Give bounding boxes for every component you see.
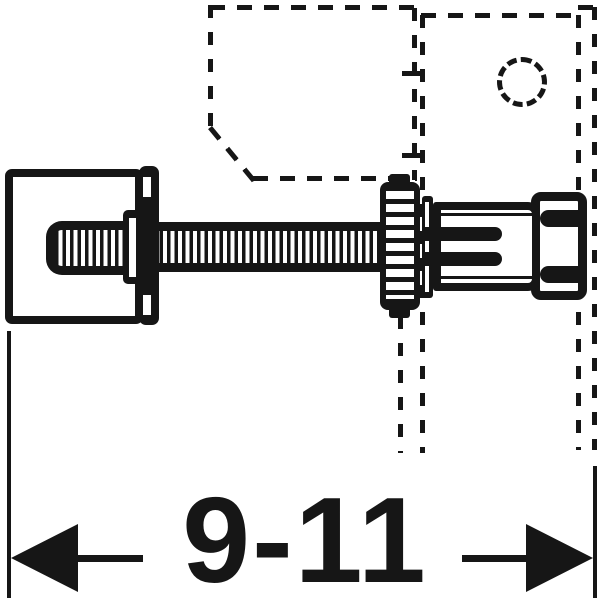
- rod-flange-groove: [129, 218, 136, 277]
- dimension-tail-left: [74, 555, 143, 562]
- panel-outline-top-dash: [210, 5, 421, 10]
- threaded-rod: [152, 222, 382, 272]
- plate-slot-bottom: [143, 295, 151, 315]
- extension-line-right: [593, 466, 597, 598]
- dimension-value: 9-11: [145, 479, 465, 600]
- anchor-sleeve-inner-wall: [440, 213, 532, 279]
- anchor-prong-top: [422, 227, 502, 241]
- panel-outline-chamfer-dash: [208, 126, 258, 185]
- panel-edge-tick-upper: [402, 71, 420, 76]
- pipe-hole-dashed-circle: [497, 57, 547, 107]
- nut-knurling: [386, 191, 414, 299]
- end-cap-rib-bottom: [540, 266, 578, 283]
- dimension-arrow-right: [526, 524, 593, 592]
- panel-edge-tick-lower: [402, 153, 420, 158]
- wall-surface-dash: [398, 316, 403, 453]
- dimension-tail-right: [462, 555, 532, 562]
- installation-diagram: 9-11: [0, 0, 600, 600]
- washer-groove: [425, 202, 429, 292]
- end-cap-rib-top: [540, 210, 578, 227]
- panel-outline-left-dash: [208, 5, 213, 126]
- rod-left-end-cap: [46, 221, 133, 275]
- anchor-prong-bottom: [422, 252, 502, 266]
- plate-slot-top: [143, 177, 151, 197]
- dimension-arrow-left: [11, 524, 78, 592]
- wall-outline-right-dash: [592, 7, 597, 450]
- profile-outline-top-dash: [421, 13, 578, 18]
